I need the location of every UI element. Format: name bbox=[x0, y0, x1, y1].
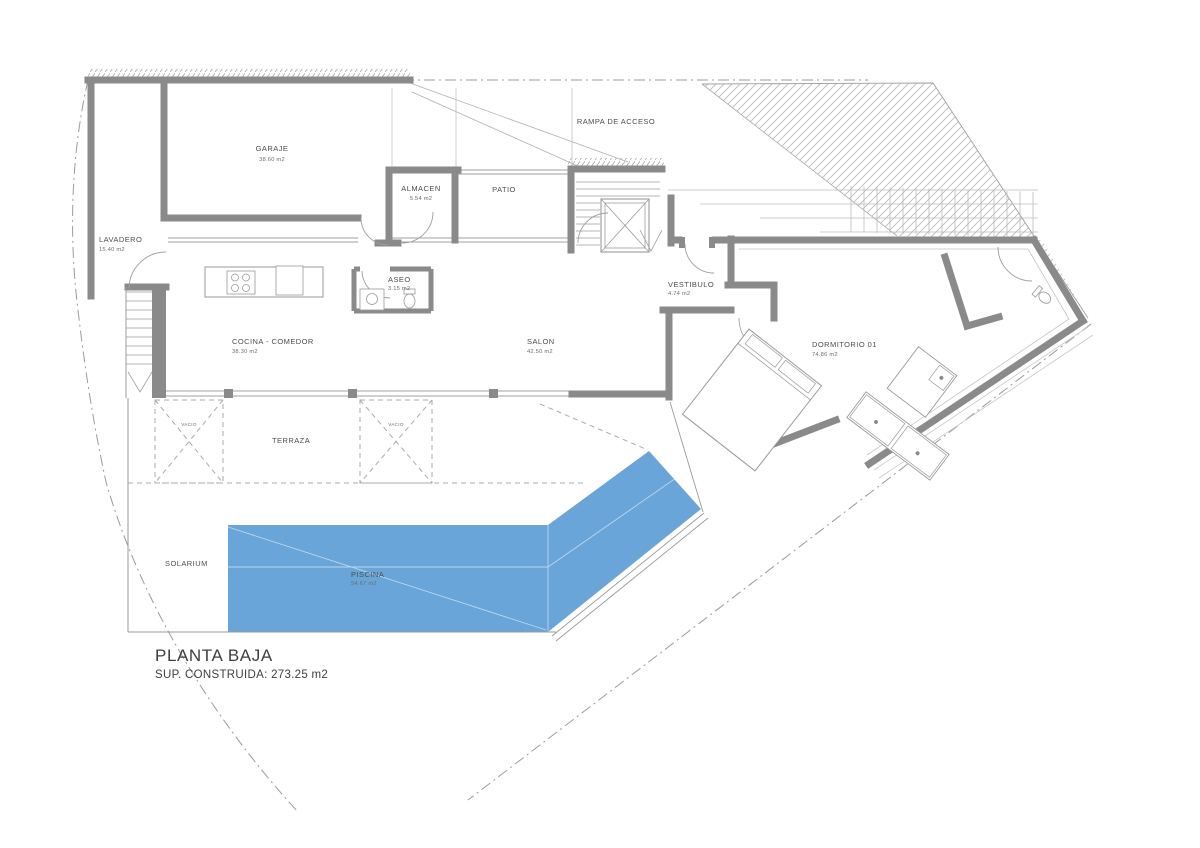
door-jambs bbox=[679, 237, 715, 248]
sink-unit bbox=[276, 266, 303, 295]
label-almacen: ALMACEN bbox=[401, 184, 440, 193]
plan-subtitle: SUP. CONSTRUIDA: 273.25 m2 bbox=[155, 669, 328, 681]
label-rampa: RAMPA DE ACCESO bbox=[577, 117, 655, 126]
cooktop bbox=[227, 271, 255, 294]
dorm-shower bbox=[887, 347, 957, 417]
boundary-left bbox=[73, 80, 298, 812]
west-stair bbox=[126, 287, 152, 398]
glass-mullions bbox=[224, 389, 498, 398]
pool-water bbox=[228, 451, 701, 632]
label-lavadero: LAVADERO bbox=[99, 235, 142, 244]
plan-title: PLANTA BAJA bbox=[155, 646, 273, 665]
label-salon: SALON bbox=[527, 337, 555, 346]
floor-plan-canvas: GARAJE 38.60 m2 LAVADERO 15.40 m2 ALMACE… bbox=[0, 0, 1200, 848]
area-dormitorio: 74.86 m2 bbox=[812, 352, 838, 358]
label-vestibulo: VESTIBULO bbox=[668, 280, 714, 289]
label-solarium: SOLARIUM bbox=[165, 559, 208, 568]
stair-wall-hatch bbox=[568, 158, 664, 166]
area-piscina: 54.67 m2 bbox=[351, 581, 377, 587]
door-vestibulo bbox=[685, 244, 714, 273]
terrace-dashed bbox=[128, 400, 648, 483]
ramp-surface bbox=[850, 186, 1038, 238]
wall-bath-stub2 bbox=[967, 317, 999, 326]
area-aseo: 3.15 m2 bbox=[388, 286, 410, 292]
aseo-sink bbox=[360, 289, 384, 310]
aseo-fixtures bbox=[360, 289, 415, 310]
label-vacio-1: VACIO bbox=[181, 422, 197, 427]
area-almacen: 5.54 m2 bbox=[410, 196, 432, 202]
floor-plan-svg: GARAJE 38.60 m2 LAVADERO 15.40 m2 ALMACE… bbox=[0, 0, 1200, 848]
area-garaje: 38.60 m2 bbox=[259, 157, 285, 163]
main-stair bbox=[576, 182, 662, 252]
pool bbox=[228, 451, 701, 632]
area-vestibulo: 4.74 m2 bbox=[668, 291, 690, 297]
garage-wall-hatch bbox=[88, 69, 410, 77]
label-garaje: GARAJE bbox=[256, 144, 289, 153]
label-patio: PATIO bbox=[492, 185, 516, 194]
door-lavadero bbox=[129, 252, 166, 289]
weststair-wall-bar bbox=[152, 285, 166, 398]
kitchen-island bbox=[205, 266, 323, 297]
area-salon: 42.50 m2 bbox=[527, 349, 553, 355]
label-dormitorio: DORMITORIO 01 bbox=[812, 340, 877, 349]
dorm-toilet bbox=[1032, 286, 1053, 306]
wall-bath-stub1 bbox=[945, 257, 967, 326]
label-piscina: PISCINA bbox=[351, 570, 384, 579]
label-terraza: TERRAZA bbox=[272, 436, 310, 445]
aseo-toilet bbox=[404, 294, 415, 308]
area-lavadero: 15.40 m2 bbox=[99, 247, 125, 253]
bed bbox=[683, 329, 822, 471]
wall-dorm-northeast-diag bbox=[1034, 240, 1083, 321]
label-vacio-2: VACIO bbox=[388, 422, 404, 427]
terraza-diagonal-dashed bbox=[540, 404, 648, 450]
label-aseo: ASEO bbox=[388, 275, 411, 284]
label-cocina: COCINA - COMEDOR bbox=[232, 337, 314, 346]
area-cocina: 38.30 m2 bbox=[232, 349, 258, 355]
door-closet bbox=[998, 247, 1032, 281]
